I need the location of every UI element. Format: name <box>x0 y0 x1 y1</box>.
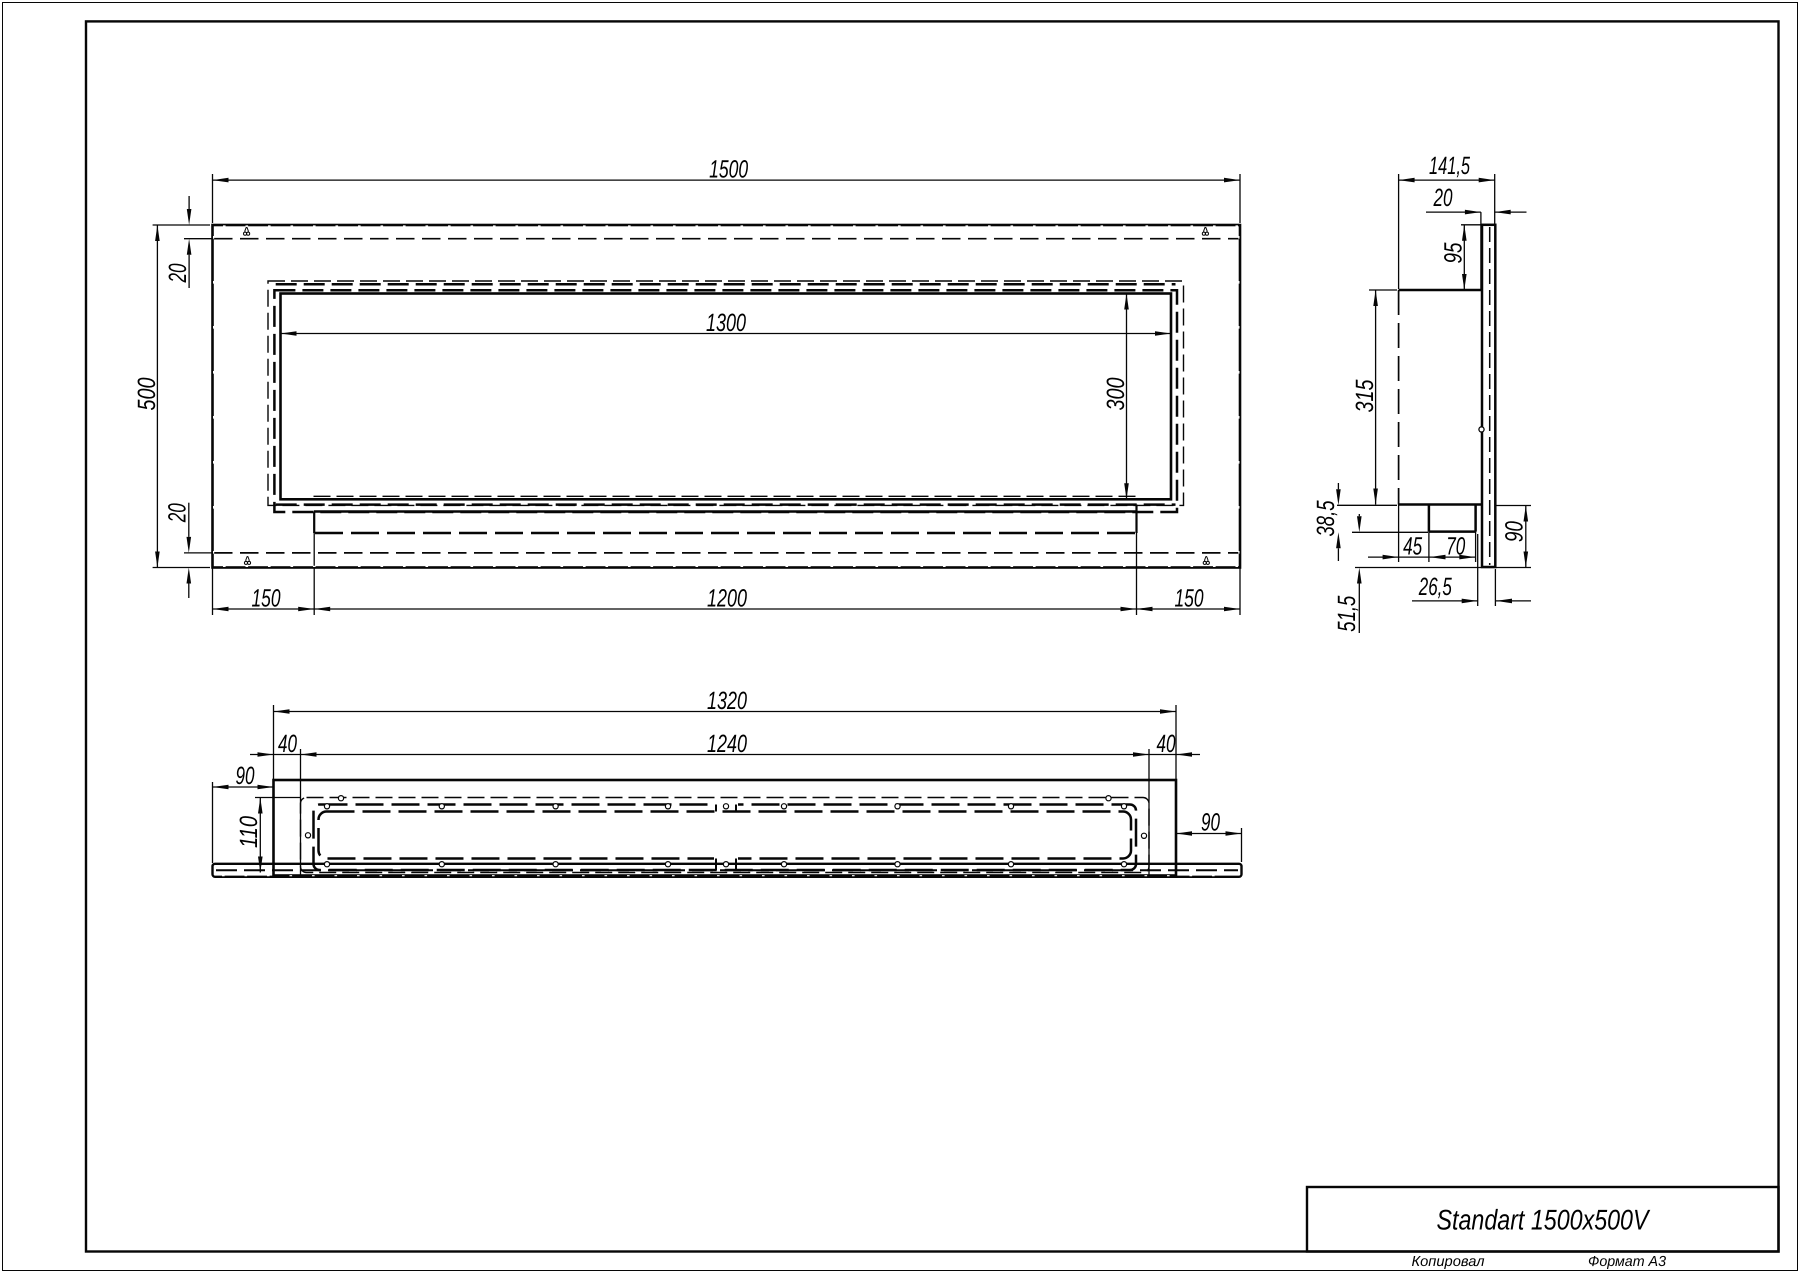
svg-text:90: 90 <box>1500 521 1528 542</box>
svg-text:90: 90 <box>1201 809 1220 837</box>
svg-text:1200: 1200 <box>707 585 747 613</box>
svg-text:Копировал: Копировал <box>1412 1254 1485 1270</box>
svg-text:141,5: 141,5 <box>1429 152 1470 180</box>
svg-text:Формат А3: Формат А3 <box>1588 1254 1666 1270</box>
svg-text:1500: 1500 <box>709 156 748 184</box>
svg-text:150: 150 <box>1175 585 1204 613</box>
svg-text:20: 20 <box>1433 184 1453 212</box>
svg-text:150: 150 <box>252 585 281 613</box>
svg-text:26,5: 26,5 <box>1418 573 1452 601</box>
svg-text:40: 40 <box>1157 730 1176 758</box>
svg-text:1240: 1240 <box>707 730 747 758</box>
svg-text:95: 95 <box>1440 242 1468 263</box>
svg-text:51,5: 51,5 <box>1333 596 1361 632</box>
svg-text:20: 20 <box>164 503 192 523</box>
svg-text:1300: 1300 <box>706 309 746 337</box>
svg-text:70: 70 <box>1446 532 1465 560</box>
svg-text:315: 315 <box>1351 379 1379 412</box>
svg-text:20: 20 <box>164 263 192 283</box>
svg-text:40: 40 <box>278 730 297 758</box>
svg-text:90: 90 <box>236 762 255 790</box>
svg-text:300: 300 <box>1102 377 1130 410</box>
svg-text:Standart 1500x500V: Standart 1500x500V <box>1437 1205 1651 1237</box>
svg-text:38,5: 38,5 <box>1312 500 1340 536</box>
svg-text:1320: 1320 <box>707 687 747 715</box>
svg-text:500: 500 <box>133 377 161 410</box>
svg-text:110: 110 <box>235 816 263 848</box>
svg-text:45: 45 <box>1403 532 1422 560</box>
